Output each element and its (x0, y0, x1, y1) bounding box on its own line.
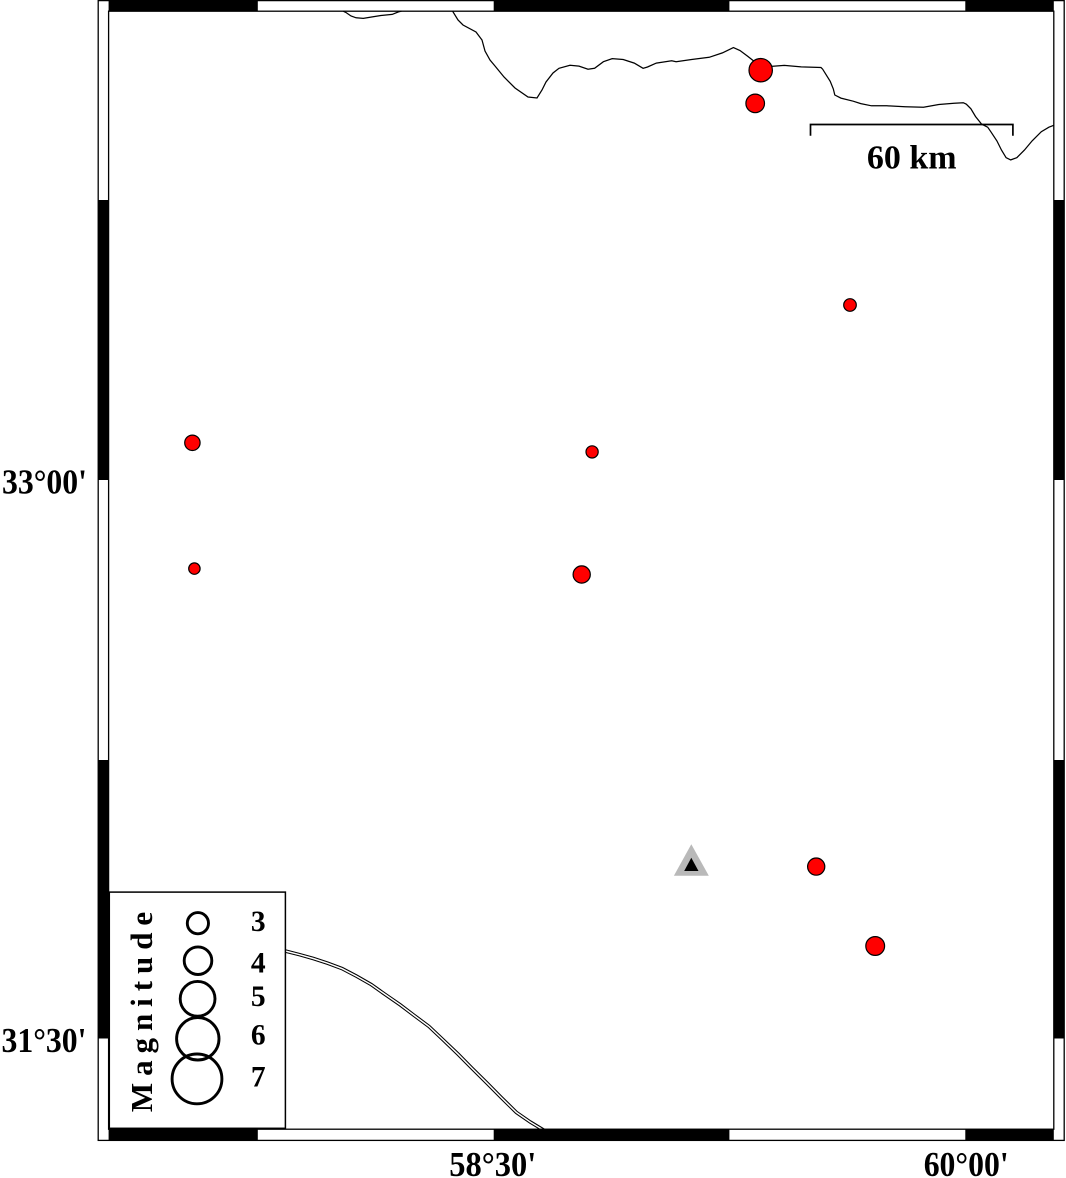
svg-text:60°00': 60°00' (924, 1145, 1009, 1178)
svg-text:7: 7 (251, 1062, 266, 1094)
svg-text:Magnitude: Magnitude (124, 905, 159, 1112)
svg-text:4: 4 (251, 948, 266, 980)
svg-text:3: 3 (251, 906, 266, 938)
svg-text:60 km: 60 km (867, 139, 957, 176)
svg-text:31°30': 31°30' (2, 1021, 87, 1060)
svg-text:33°00': 33°00' (2, 463, 87, 502)
svg-text:5: 5 (251, 981, 266, 1013)
svg-text:6: 6 (251, 1020, 266, 1052)
svg-text:58°30': 58°30' (449, 1145, 536, 1178)
